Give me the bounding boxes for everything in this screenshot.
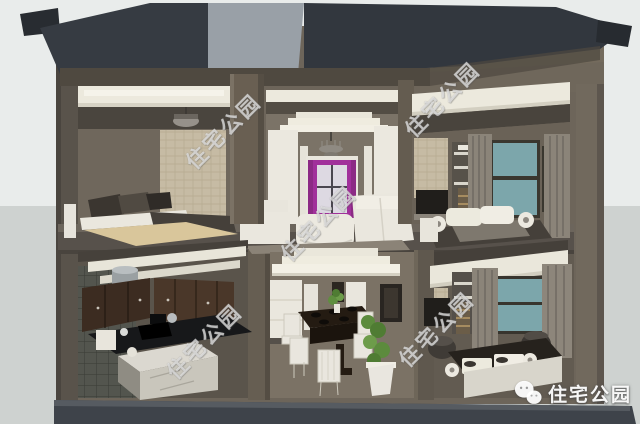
crown-molding [266, 90, 402, 102]
screenshot-root: 住宅公园 住宅公园 住宅公园 住宅公园 住宅公园 住宅公园 [0, 0, 640, 424]
sink-bowl [127, 347, 137, 357]
kitchen-island [118, 342, 218, 400]
room-kitchen [78, 240, 252, 400]
room-dining [270, 248, 414, 398]
magenta-window [306, 156, 358, 224]
accent-wall-panel [414, 138, 448, 198]
room-living [240, 90, 414, 254]
ceiling-medallion [280, 112, 388, 132]
pot [167, 313, 177, 323]
nightstand [64, 204, 76, 238]
roof-slope-middle [208, 3, 304, 74]
room-bedroom-lower-right [424, 240, 574, 398]
nightstand [420, 218, 438, 242]
tv [424, 298, 450, 326]
room-bedroom-upper-right [412, 82, 570, 248]
room-master-bedroom [64, 86, 238, 246]
house-cutaway-render [0, 0, 640, 424]
tv [416, 190, 448, 214]
